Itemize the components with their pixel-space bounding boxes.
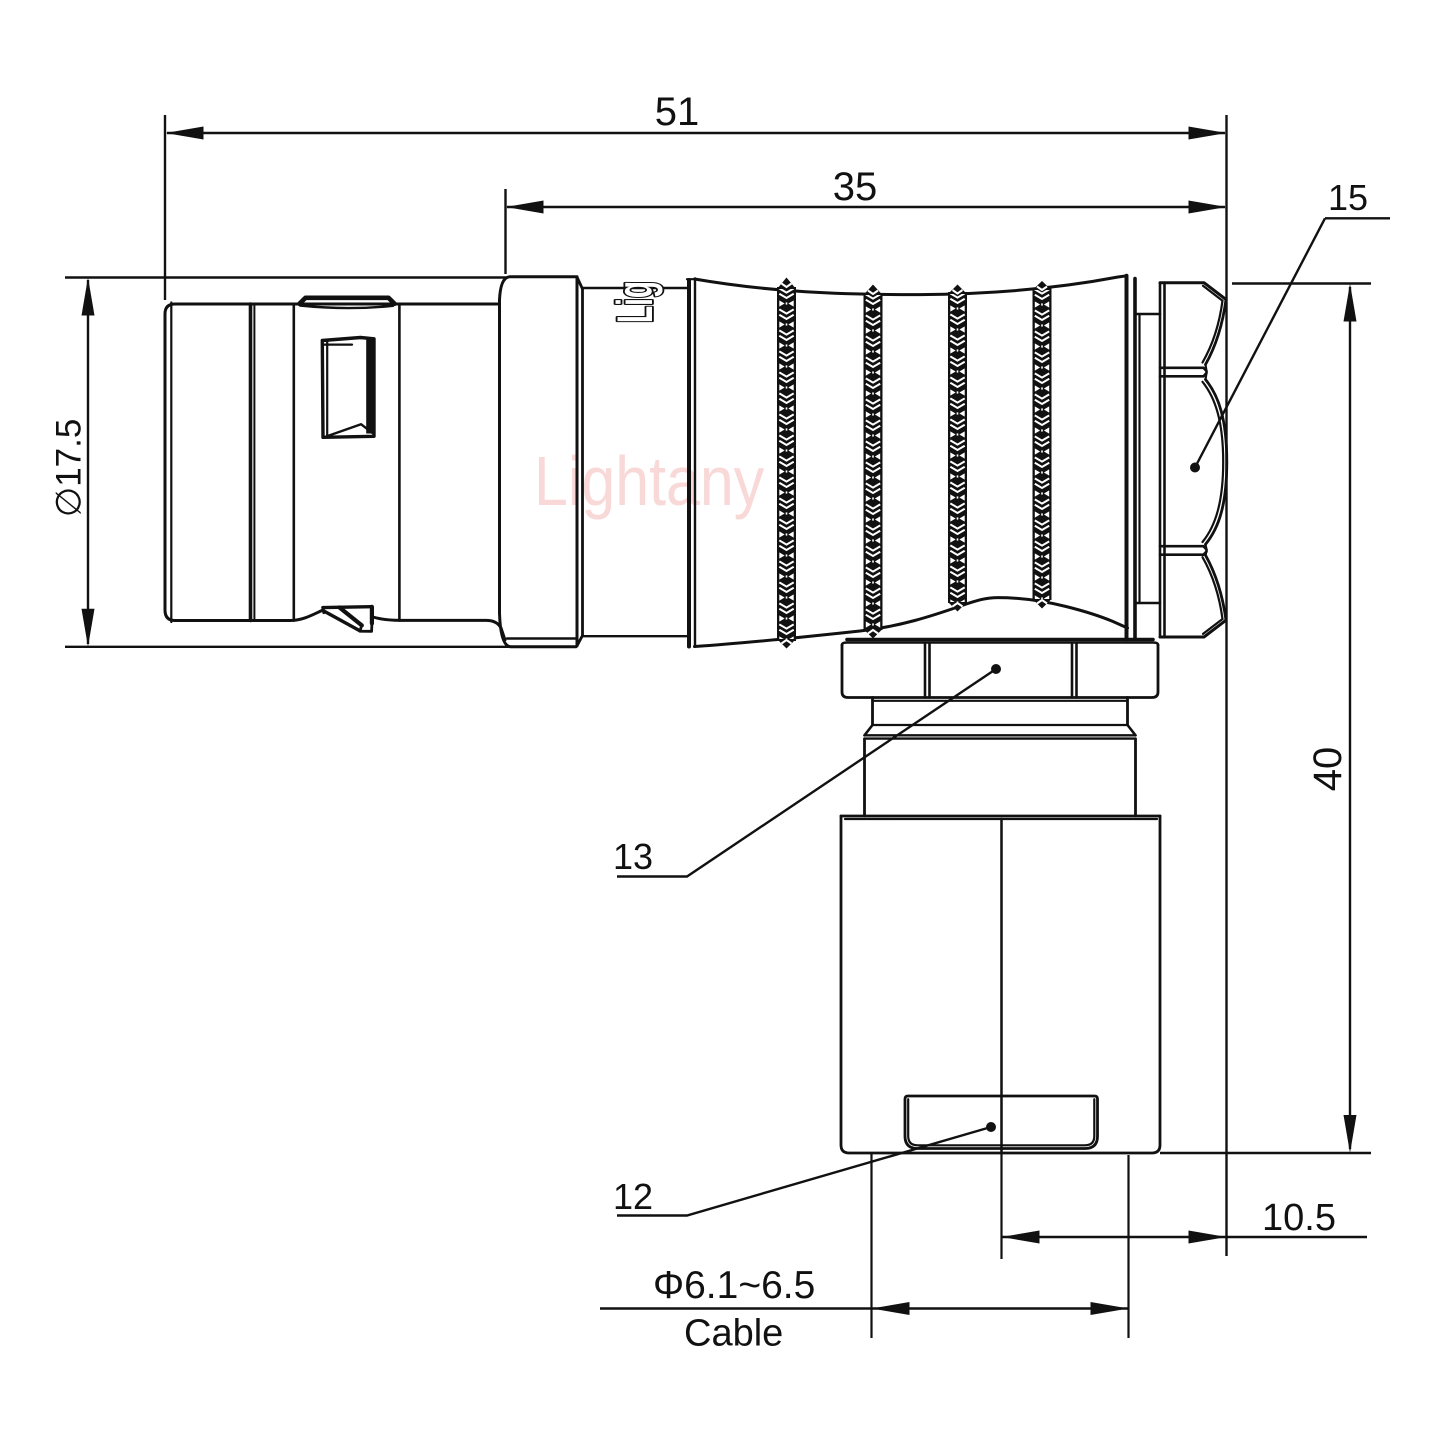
svg-text:15: 15 — [1328, 177, 1368, 218]
svg-text:∅17.5: ∅17.5 — [50, 419, 89, 518]
svg-text:51: 51 — [655, 90, 700, 134]
svg-text:12: 12 — [613, 1176, 653, 1217]
svg-text:40: 40 — [1306, 747, 1350, 792]
svg-text:35: 35 — [833, 165, 878, 209]
svg-text:10.5: 10.5 — [1262, 1197, 1336, 1239]
svg-text:Cable: Cable — [684, 1313, 783, 1355]
svg-text:Lightany: Lightany — [534, 442, 764, 520]
svg-text:Φ6.1~6.5: Φ6.1~6.5 — [653, 1264, 815, 1307]
svg-text:Lig: Lig — [606, 281, 663, 323]
svg-text:13: 13 — [613, 836, 653, 877]
